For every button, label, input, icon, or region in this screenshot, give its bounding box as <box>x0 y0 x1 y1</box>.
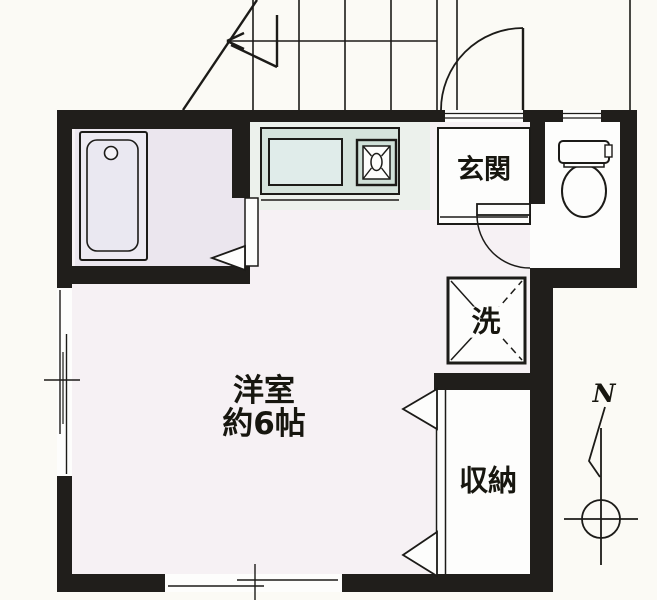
closet-label: 収納 <box>459 466 517 497</box>
floorplan-drawing <box>0 0 657 600</box>
north-label: N <box>593 381 616 408</box>
western-room-size: 約6帖 <box>222 408 306 441</box>
bathroom-right-wall <box>232 129 250 198</box>
closet-top-wall <box>434 373 553 390</box>
stove-burner-icon <box>371 154 382 171</box>
wall-right-upper <box>620 122 637 268</box>
kitchen-sink <box>269 139 342 185</box>
wall-left-lower <box>57 476 72 574</box>
wall-bottom-right <box>342 574 553 592</box>
toilet-bowl-icon <box>562 165 606 217</box>
bathroom-bottom-wall <box>57 266 250 284</box>
genkan-toilet-wall <box>530 122 545 204</box>
toilet-doorway <box>530 204 545 268</box>
wall-top-right <box>601 110 637 122</box>
entrance-door-swing-arc <box>441 28 523 110</box>
wall-left-upper <box>57 122 72 288</box>
wall-bottom-left <box>57 574 165 592</box>
north-compass <box>564 407 638 565</box>
compass-needle-icon <box>589 407 605 477</box>
western-room-name: 洋室 <box>222 375 306 408</box>
wall-top-mid <box>523 110 563 122</box>
stair-break-line <box>183 0 257 110</box>
stairs <box>183 0 630 110</box>
toilet-window <box>563 110 601 122</box>
bathtub-drain-icon <box>105 147 118 160</box>
laundry-label: 洗 <box>470 307 501 338</box>
left-window <box>57 288 72 476</box>
floorplan-canvas: 玄関 洗 洋室 約6帖 収納 N <box>0 0 657 600</box>
bathroom-top-wall <box>57 122 250 129</box>
genkan-label: 玄関 <box>457 157 511 186</box>
entrance-doorway <box>445 110 523 122</box>
stair-arrow-tail <box>231 45 277 67</box>
toilet-tank <box>559 141 609 163</box>
kitchen <box>261 128 399 200</box>
wall-top-left <box>57 110 445 122</box>
toilet-bottom-wall <box>530 268 637 288</box>
toilet-flush-handle <box>605 145 612 157</box>
toilet-door-leaf <box>477 204 530 215</box>
western-room-label: 洋室 約6帖 <box>222 375 306 441</box>
bathroom-door-leaf <box>245 198 258 266</box>
entrance-door <box>441 28 523 110</box>
bottom-window <box>165 574 342 592</box>
wall-right-lower <box>530 288 553 574</box>
